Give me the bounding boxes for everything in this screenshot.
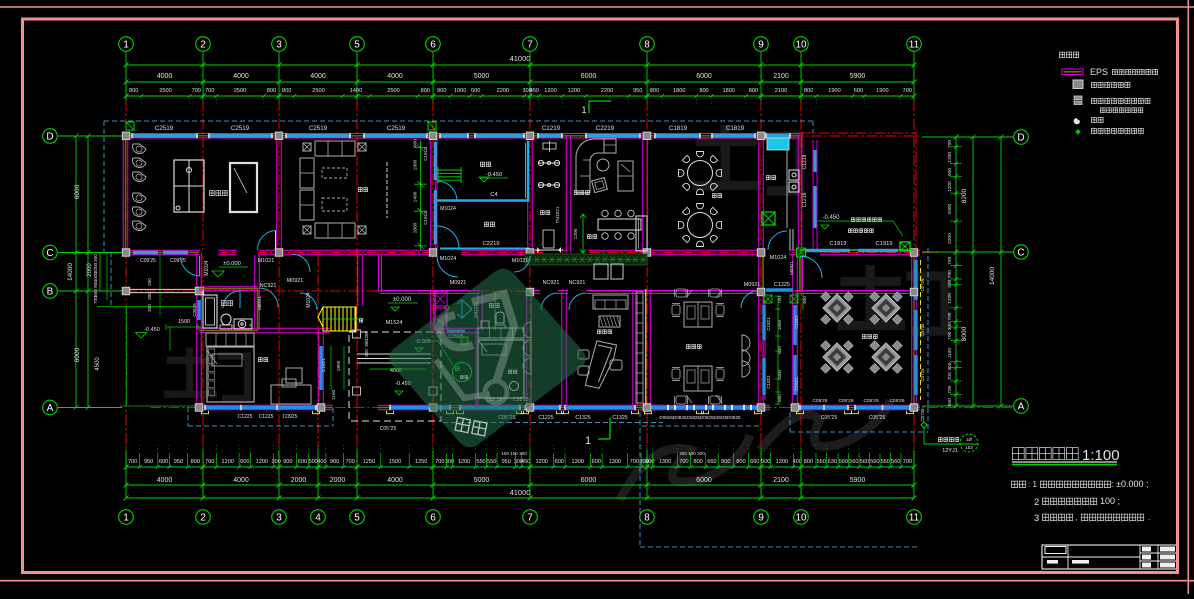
svg-text:400: 400	[793, 459, 802, 465]
svg-text:800: 800	[693, 459, 702, 465]
svg-text:700: 700	[903, 88, 912, 94]
svg-text:D: D	[1017, 133, 1024, 144]
svg-text:C2519: C2519	[387, 125, 406, 132]
svg-text:700: 700	[679, 459, 688, 465]
svg-text:C1225: C1225	[259, 414, 274, 420]
svg-text:600: 600	[240, 459, 249, 465]
svg-text:6000: 6000	[696, 73, 712, 80]
svg-text:11: 11	[909, 40, 920, 51]
svg-text:1200: 1200	[776, 459, 788, 465]
svg-text:4000: 4000	[310, 73, 326, 80]
svg-text:C1821: C1821	[766, 375, 771, 389]
svg-text:1100: 1100	[331, 390, 337, 401]
svg-text:700: 700	[630, 459, 639, 465]
svg-text:1200: 1200	[947, 181, 953, 192]
svg-text:M0921: M0921	[287, 278, 303, 284]
svg-text:.: .	[1148, 513, 1150, 522]
svg-text:C0825: C0825	[192, 303, 197, 317]
svg-text:1000: 1000	[454, 88, 466, 94]
svg-text:,: ,	[1075, 513, 1077, 522]
svg-text:±0.000: ±0.000	[393, 297, 412, 303]
svg-text:6: 6	[430, 513, 436, 524]
svg-text:950: 950	[174, 459, 183, 465]
svg-text:M0921: M0921	[450, 280, 466, 286]
svg-text:C: C	[1017, 248, 1024, 259]
svg-text:800: 800	[129, 88, 138, 94]
svg-text:6000: 6000	[581, 477, 597, 484]
svg-text:4: 4	[315, 513, 321, 524]
svg-text:C05"25: C05"25	[821, 415, 838, 421]
svg-text:5900: 5900	[850, 73, 866, 80]
svg-text:C1815: C1815	[423, 147, 428, 161]
svg-text:5: 5	[354, 513, 360, 524]
svg-text:D0825D0825D0825D0825D0825D0825: D0825D0825D0825D0825D0825D0825	[659, 415, 741, 420]
svg-text:560: 560	[849, 459, 858, 465]
svg-text:400: 400	[317, 459, 326, 465]
svg-text:1: 1	[123, 40, 129, 51]
svg-text:900: 900	[437, 88, 446, 94]
svg-text:6: 6	[430, 40, 436, 51]
svg-text:700: 700	[346, 459, 355, 465]
svg-text:C1225: C1225	[774, 282, 790, 288]
svg-text:C: C	[46, 248, 53, 259]
svg-text:B: B	[47, 287, 54, 298]
svg-text:C1325: C1325	[612, 415, 627, 421]
svg-text:100 ;: 100 ;	[1100, 496, 1120, 506]
svg-text:1300: 1300	[609, 459, 621, 465]
svg-text:100 100 300: 100 100 300	[501, 451, 527, 456]
svg-text:C0725: C0725	[920, 368, 925, 381]
svg-text:1500: 1500	[178, 319, 190, 325]
svg-text:1250: 1250	[415, 459, 427, 465]
svg-text:1400: 1400	[413, 191, 419, 202]
svg-text:600: 600	[947, 398, 953, 406]
svg-text:550: 550	[476, 459, 485, 465]
svg-text:-0.450: -0.450	[822, 215, 840, 221]
svg-text:10: 10	[795, 513, 807, 524]
svg-text:C4: C4	[490, 192, 498, 198]
svg-text:C09'25: C09'25	[140, 258, 156, 264]
svg-text:M1524: M1524	[386, 320, 403, 326]
svg-text:C0725: C0725	[920, 278, 925, 291]
svg-text:2100: 2100	[773, 477, 789, 484]
svg-text:300: 300	[445, 459, 454, 465]
svg-text:: ±0.000 ;: : ±0.000 ;	[1111, 479, 1148, 489]
svg-text:700: 700	[947, 270, 953, 278]
svg-text:560: 560	[817, 459, 826, 465]
svg-text:600: 600	[298, 459, 307, 465]
svg-text:C1821: C1821	[766, 317, 771, 331]
svg-text:700: 700	[947, 385, 953, 393]
svg-text:8200: 8200	[961, 188, 968, 203]
svg-text:550: 550	[487, 459, 496, 465]
svg-text:660: 660	[750, 459, 759, 465]
svg-text:A: A	[47, 403, 54, 414]
svg-text:C1819: C1819	[669, 125, 688, 132]
svg-text:12YJ1: 12YJ1	[942, 448, 958, 454]
svg-text:600: 600	[854, 88, 863, 94]
svg-text:A: A	[1018, 402, 1025, 413]
svg-text:1: 1	[585, 435, 591, 447]
svg-text:900: 900	[330, 459, 339, 465]
svg-text:2200: 2200	[601, 88, 613, 94]
svg-text:700: 700	[205, 88, 214, 94]
svg-text:3: 3	[276, 40, 282, 51]
svg-text:5900: 5900	[850, 477, 866, 484]
svg-text:C1225: C1225	[238, 414, 253, 420]
svg-text:10: 10	[795, 40, 807, 51]
svg-text:C05"25: C05"25	[380, 426, 397, 432]
svg-text:C05'25: C05'25	[863, 398, 878, 404]
svg-text:1100: 1100	[947, 348, 953, 359]
svg-text:TN1521: TN1521	[555, 206, 561, 223]
svg-text:1900: 1900	[828, 88, 840, 94]
svg-text:C1815: C1815	[423, 211, 428, 225]
svg-text:2200: 2200	[947, 233, 953, 244]
svg-text:1800: 1800	[336, 360, 342, 371]
svg-text:2: 2	[200, 40, 206, 51]
svg-text:14000: 14000	[67, 263, 74, 281]
svg-text:2500: 2500	[234, 88, 246, 94]
svg-text:800: 800	[736, 459, 745, 465]
svg-text:500: 500	[761, 459, 770, 465]
svg-text:630: 630	[828, 459, 837, 465]
svg-text:450: 450	[521, 459, 530, 465]
svg-text:4000: 4000	[157, 477, 173, 484]
svg-text:1200: 1200	[573, 228, 579, 239]
svg-text:700: 700	[205, 459, 214, 465]
svg-text:C2519: C2519	[231, 125, 250, 132]
svg-text:300: 300	[947, 322, 953, 330]
svg-text:3: 3	[276, 513, 282, 524]
svg-text:900: 900	[283, 459, 292, 465]
svg-text:700: 700	[128, 459, 137, 465]
svg-text:450: 450	[530, 88, 539, 94]
svg-text:5000: 5000	[474, 73, 490, 80]
svg-text:C2219: C2219	[482, 241, 499, 247]
svg-text:C0925: C0925	[283, 414, 298, 420]
svg-text:41000: 41000	[510, 54, 531, 63]
svg-text:2500: 2500	[159, 88, 171, 94]
svg-text:950: 950	[144, 459, 153, 465]
svg-text:C05'25: C05'25	[889, 398, 904, 404]
svg-text:800: 800	[267, 88, 276, 94]
svg-text:41000: 41000	[510, 488, 531, 497]
svg-text:C1821: C1821	[321, 358, 327, 372]
svg-text:600: 600	[555, 459, 564, 465]
svg-text:NC921: NC921	[543, 280, 560, 286]
svg-text:C1919: C1919	[829, 241, 846, 247]
svg-text:C1325: C1325	[575, 415, 590, 421]
svg-text:6000: 6000	[74, 347, 81, 362]
svg-text:NC921: NC921	[260, 283, 277, 289]
svg-text:700: 700	[93, 296, 98, 304]
svg-text:700: 700	[903, 459, 912, 465]
svg-text:2100: 2100	[773, 73, 789, 80]
svg-text:950: 950	[633, 88, 642, 94]
svg-text:C1819: C1819	[726, 125, 745, 132]
svg-text:800: 800	[93, 289, 98, 297]
svg-text:300: 300	[271, 459, 280, 465]
svg-text:2: 2	[200, 513, 206, 524]
svg-text:3: 3	[1034, 513, 1039, 524]
svg-text:700: 700	[947, 372, 953, 380]
svg-text:C0725: C0725	[920, 408, 925, 421]
svg-text:2000: 2000	[330, 477, 346, 484]
svg-text:EPS: EPS	[1090, 67, 1108, 77]
svg-text:C05'25: C05'25	[812, 398, 827, 404]
svg-text:M1024: M1024	[440, 256, 456, 262]
svg-text:600: 600	[592, 459, 601, 465]
svg-text:200 100 200: 200 100 200	[679, 451, 705, 456]
svg-text:: 1: : 1	[1028, 480, 1037, 489]
svg-text:M1024: M1024	[440, 206, 456, 212]
svg-text:300: 300	[645, 459, 654, 465]
svg-text:560: 560	[839, 459, 848, 465]
svg-text:C2219: C2219	[596, 125, 615, 132]
svg-text:560: 560	[891, 459, 900, 465]
svg-text:1200: 1200	[535, 459, 547, 465]
svg-text:300: 300	[364, 349, 369, 357]
svg-text:M1024: M1024	[770, 255, 786, 261]
svg-text:NC921: NC921	[569, 280, 586, 286]
svg-text:300: 300	[93, 254, 98, 262]
svg-text:5: 5	[354, 40, 360, 51]
svg-text:4000: 4000	[387, 73, 403, 80]
svg-text:2000: 2000	[93, 262, 98, 273]
svg-text:800: 800	[421, 88, 430, 94]
svg-text:C05'25: C05'25	[838, 398, 853, 404]
svg-text:700: 700	[947, 331, 953, 339]
svg-text:C2519: C2519	[309, 125, 328, 132]
svg-text:1200: 1200	[544, 88, 556, 94]
svg-text:9: 9	[758, 40, 764, 51]
svg-text:1400: 1400	[350, 88, 362, 94]
svg-text:1: 1	[123, 513, 129, 524]
svg-text:C1225: C1225	[538, 415, 553, 421]
svg-text:600: 600	[413, 139, 419, 147]
svg-text:C1821: C1821	[794, 377, 799, 391]
svg-text:1200: 1200	[256, 459, 268, 465]
svg-text:2000: 2000	[947, 203, 953, 214]
svg-text:1200: 1200	[364, 330, 369, 341]
svg-text:2100: 2100	[775, 88, 787, 94]
svg-text:153: 153	[965, 445, 973, 450]
svg-text:8: 8	[644, 513, 650, 524]
svg-text:C0725: C0725	[920, 323, 925, 336]
svg-text:D: D	[46, 132, 53, 143]
svg-text:800: 800	[721, 459, 730, 465]
svg-text:M1024: M1024	[204, 260, 210, 276]
svg-text:C1219: C1219	[802, 154, 808, 169]
svg-text:2: 2	[1034, 497, 1039, 508]
svg-text:M1024: M1024	[306, 292, 312, 308]
svg-text:560: 560	[870, 459, 879, 465]
svg-text:1250: 1250	[363, 459, 375, 465]
svg-text:1900: 1900	[413, 159, 419, 170]
svg-text:6000: 6000	[74, 184, 81, 199]
svg-text:M1021: M1021	[512, 258, 528, 264]
svg-text:M0921: M0921	[789, 261, 794, 275]
svg-text:900: 900	[93, 280, 98, 288]
svg-text:4000: 4000	[233, 73, 249, 80]
svg-text:300: 300	[947, 362, 953, 370]
svg-text:300: 300	[147, 292, 152, 300]
svg-text:4000: 4000	[387, 477, 403, 484]
svg-text:700: 700	[947, 256, 953, 264]
svg-text:1800: 1800	[673, 88, 685, 94]
svg-text:4000: 4000	[157, 73, 173, 80]
svg-text:7: 7	[527, 40, 533, 51]
svg-text:1500: 1500	[389, 459, 401, 465]
svg-text:1300: 1300	[659, 459, 671, 465]
svg-text:800: 800	[282, 88, 291, 94]
svg-text:1Ø: 1Ø	[966, 437, 972, 442]
svg-text:700: 700	[192, 88, 201, 94]
svg-text:600: 600	[159, 459, 168, 465]
svg-text:600: 600	[471, 88, 480, 94]
svg-text:1800: 1800	[413, 222, 419, 233]
svg-text:6000: 6000	[581, 73, 597, 80]
svg-text:800: 800	[804, 88, 813, 94]
svg-text:8: 8	[644, 40, 650, 51]
svg-text:700: 700	[947, 312, 953, 320]
svg-text:200: 200	[147, 278, 152, 286]
svg-text:1200: 1200	[947, 152, 953, 163]
svg-text:7: 7	[527, 513, 533, 524]
svg-text:2000: 2000	[291, 477, 307, 484]
svg-text:4500: 4500	[95, 357, 101, 371]
svg-text:M0821: M0821	[257, 296, 262, 310]
svg-text:2500: 2500	[312, 88, 324, 94]
svg-text:1200: 1200	[458, 459, 470, 465]
svg-text:1900: 1900	[876, 88, 888, 94]
svg-text:±0.000: ±0.000	[223, 261, 241, 267]
svg-text:C1919: C1919	[875, 241, 892, 247]
svg-text:950: 950	[502, 459, 511, 465]
svg-text:8000: 8000	[961, 326, 968, 341]
svg-text:M0921: M0921	[744, 282, 760, 288]
svg-text:5000: 5000	[474, 477, 490, 484]
svg-text:M1021: M1021	[258, 258, 274, 264]
svg-text:300: 300	[947, 280, 953, 288]
svg-text:C1219: C1219	[542, 125, 561, 132]
svg-text:1200: 1200	[947, 293, 953, 304]
svg-text:560: 560	[881, 459, 890, 465]
svg-text:1: 1	[581, 105, 586, 115]
svg-text:800: 800	[191, 459, 200, 465]
svg-text:2200: 2200	[497, 88, 509, 94]
svg-text:2500: 2500	[387, 88, 399, 94]
svg-text:C2519: C2519	[155, 125, 174, 132]
svg-text:700: 700	[435, 459, 444, 465]
svg-text:C09'25: C09'25	[170, 258, 186, 264]
svg-text:1200: 1200	[568, 88, 580, 94]
svg-text:1300: 1300	[572, 459, 584, 465]
svg-text:560: 560	[860, 459, 869, 465]
svg-text:800: 800	[650, 88, 659, 94]
svg-text:C1219: C1219	[802, 192, 808, 207]
svg-text:800: 800	[804, 459, 813, 465]
svg-text:C05"25: C05"25	[869, 415, 886, 421]
svg-text:C1821: C1821	[794, 315, 799, 329]
svg-text:1800: 1800	[722, 88, 734, 94]
svg-text:6000: 6000	[696, 477, 712, 484]
svg-text:11: 11	[909, 513, 920, 524]
svg-text:14000: 14000	[989, 267, 996, 285]
svg-text:1200: 1200	[221, 459, 233, 465]
svg-text:800: 800	[749, 88, 758, 94]
svg-text:660: 660	[707, 459, 716, 465]
svg-text:800: 800	[699, 88, 708, 94]
svg-text:900: 900	[947, 168, 953, 176]
svg-text:300: 300	[147, 304, 152, 312]
svg-text:4000: 4000	[233, 477, 249, 484]
svg-text:9: 9	[758, 513, 764, 524]
